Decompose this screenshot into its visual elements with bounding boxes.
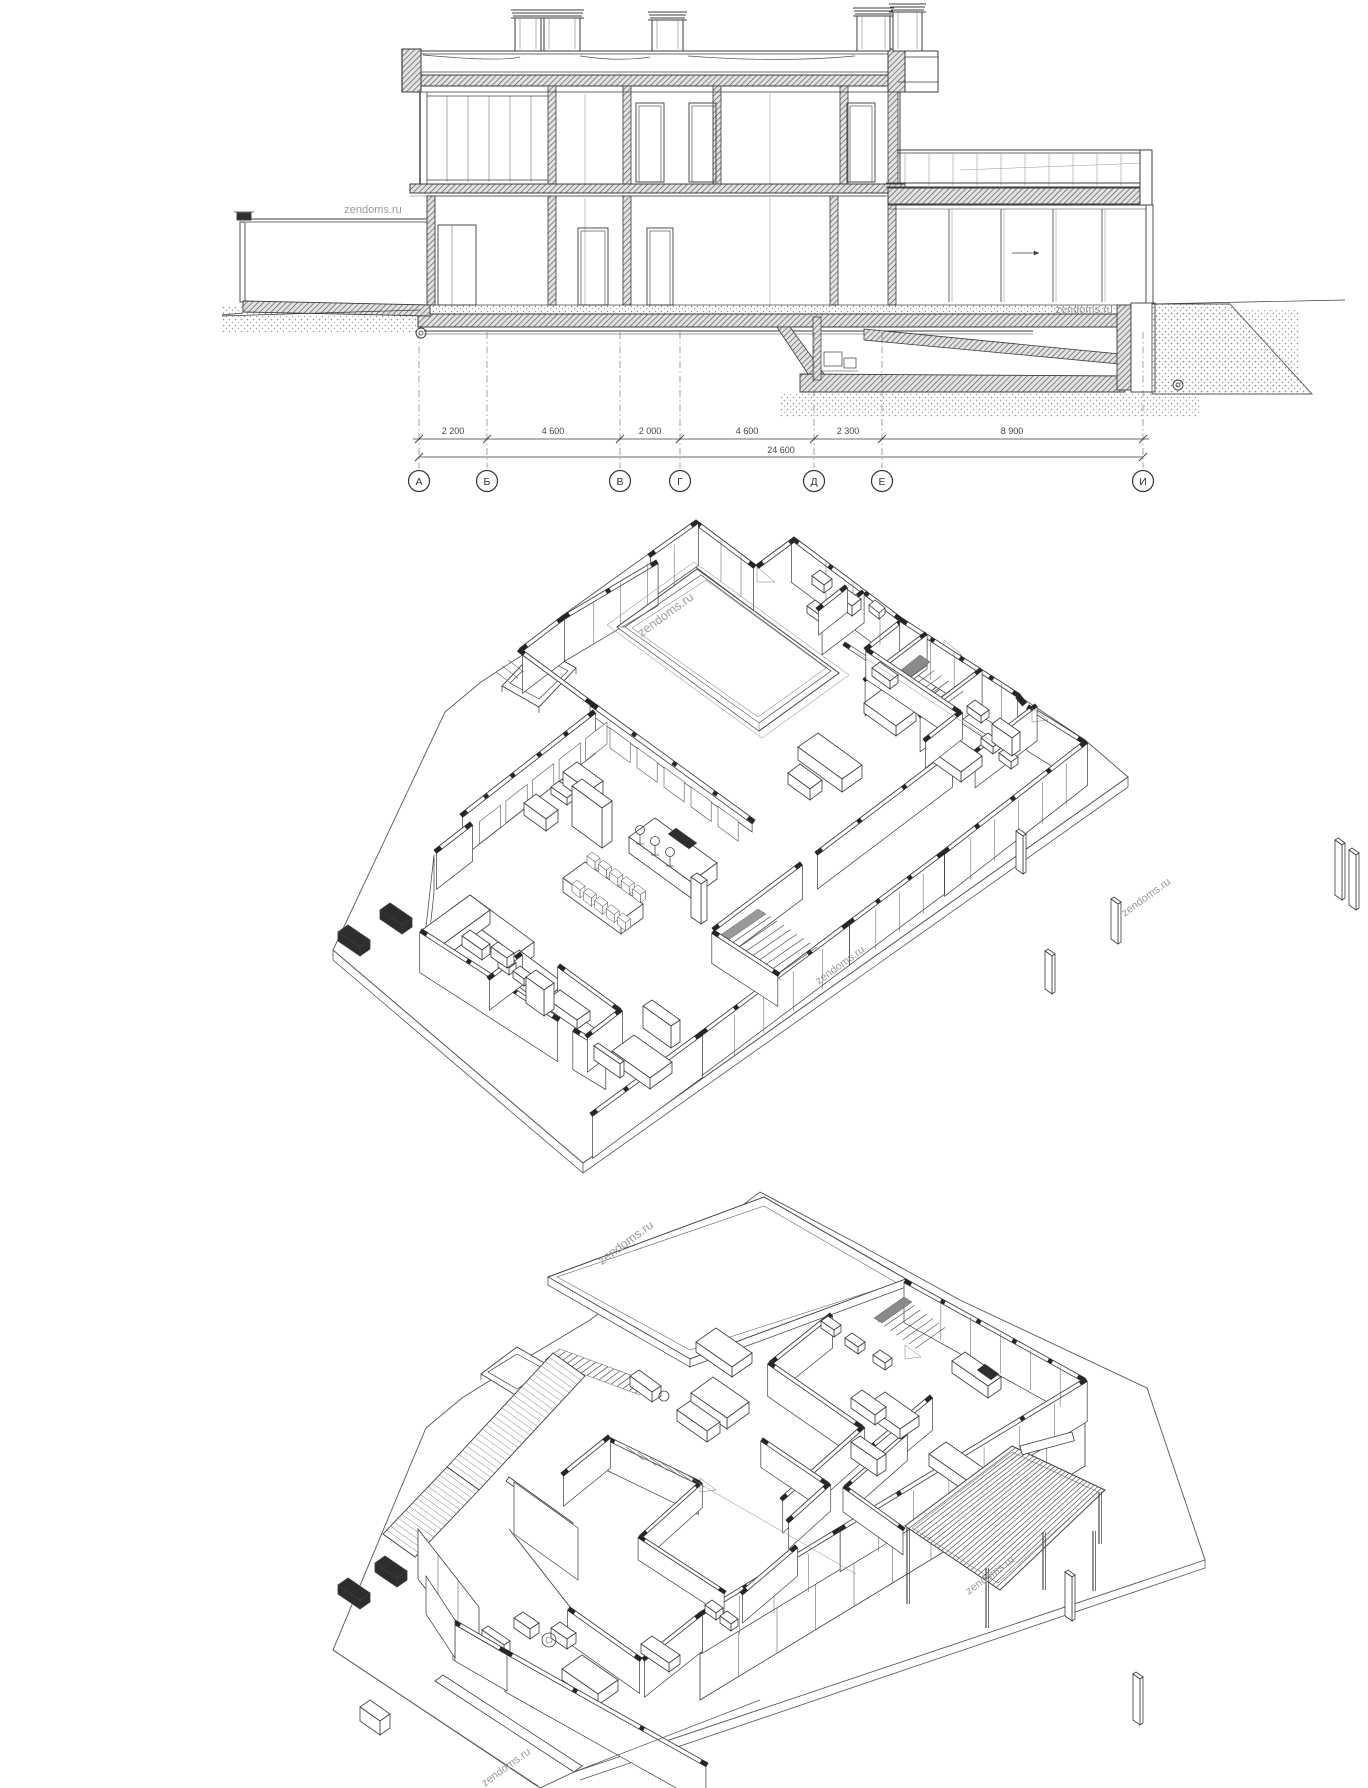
svg-text:И: И <box>1139 476 1147 488</box>
svg-text:А: А <box>415 476 422 488</box>
svg-text:Д: Д <box>810 476 817 488</box>
svg-text:Е: Е <box>878 476 885 488</box>
svg-text:zendoms.ru: zendoms.ru <box>1119 876 1173 919</box>
svg-text:Г: Г <box>677 476 683 488</box>
svg-text:4 600: 4 600 <box>736 426 759 436</box>
svg-text:В: В <box>616 476 623 488</box>
svg-text:zendoms.ru: zendoms.ru <box>344 204 401 216</box>
svg-text:Б: Б <box>484 476 491 488</box>
svg-text:4 600: 4 600 <box>542 426 565 436</box>
svg-text:2 300: 2 300 <box>837 426 860 436</box>
svg-text:24 600: 24 600 <box>767 445 795 455</box>
svg-text:8 900: 8 900 <box>1001 426 1024 436</box>
svg-text:2 200: 2 200 <box>442 426 465 436</box>
svg-text:2 000: 2 000 <box>639 426 662 436</box>
svg-text:zendoms.ru: zendoms.ru <box>1055 304 1112 316</box>
